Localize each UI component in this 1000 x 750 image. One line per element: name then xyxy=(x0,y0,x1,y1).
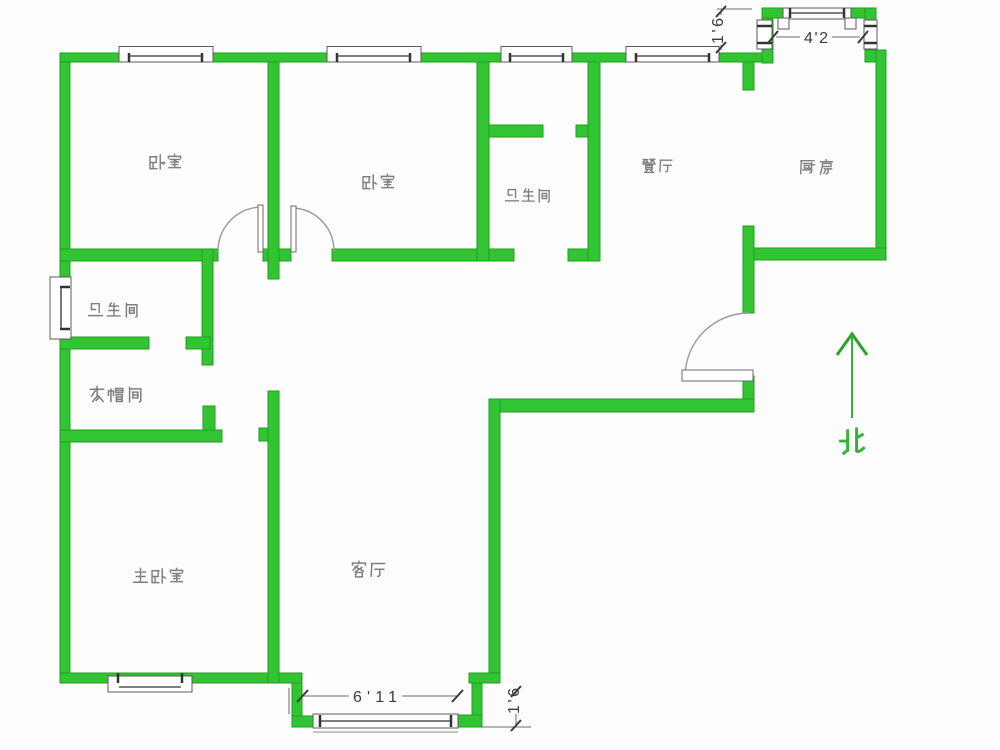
svg-text:1'6: 1'6 xyxy=(506,688,523,714)
svg-text:4'2: 4'2 xyxy=(804,30,828,47)
svg-text:1'6: 1'6 xyxy=(710,18,727,44)
svg-text:6'11: 6'11 xyxy=(353,689,397,706)
